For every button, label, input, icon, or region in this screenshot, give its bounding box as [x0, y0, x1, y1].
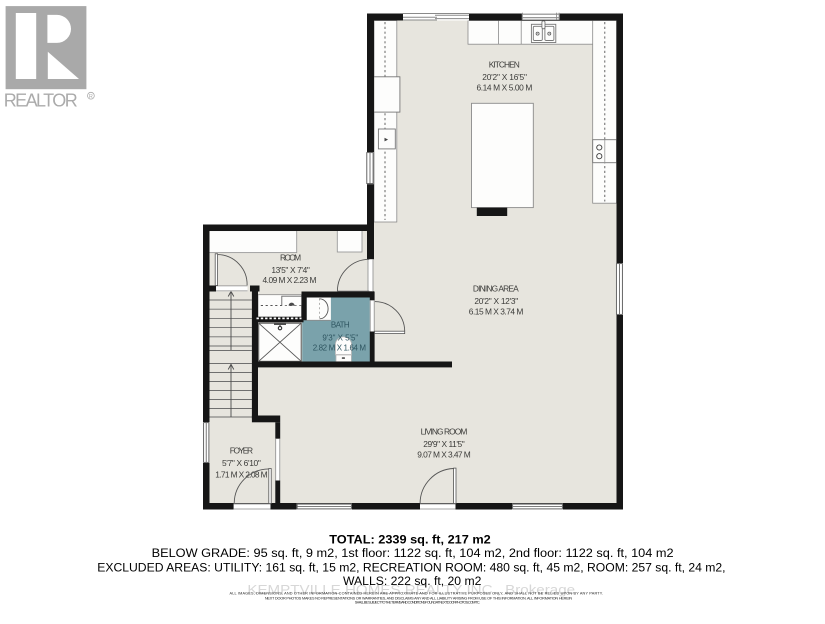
- svg-text:6.15 M X 3.74 M: 6.15 M X 3.74 M: [469, 307, 524, 317]
- svg-text:WALLS: 222 sq. ft, 20 m2: WALLS: 222 sq. ft, 20 m2: [343, 574, 481, 588]
- svg-text:R: R: [89, 94, 93, 100]
- svg-text:4.09 M X 2.23 M: 4.09 M X 2.23 M: [263, 275, 317, 285]
- svg-text:KITCHEN: KITCHEN: [489, 59, 520, 69]
- svg-text:FOYER: FOYER: [230, 445, 253, 455]
- svg-text:ALL IMAGES, DIMENSIONS, AND OT: ALL IMAGES, DIMENSIONS, AND OTHER INFORM…: [230, 592, 604, 596]
- svg-text:ROOM: ROOM: [280, 253, 301, 263]
- svg-text:9'3" X 5'5": 9'3" X 5'5": [322, 333, 358, 342]
- svg-text:6.14 M X 5.00 M: 6.14 M X 5.00 M: [477, 83, 533, 93]
- svg-text:29'9" X 11'5": 29'9" X 11'5": [423, 439, 465, 449]
- svg-text:SHALL BE SUBJECT TO THE TERMS: SHALL BE SUBJECT TO THE TERMS AND CONDIT…: [355, 601, 480, 605]
- svg-text:EXCLUDED AREAS: UTILITY: 161 s: EXCLUDED AREAS: UTILITY: 161 sq. ft, 15 …: [97, 561, 725, 575]
- svg-text:LIVING ROOM: LIVING ROOM: [421, 427, 468, 437]
- svg-text:20'2" X 16'5": 20'2" X 16'5": [482, 72, 527, 82]
- svg-text:TOTAL: 2339 sq. ft, 217 m2: TOTAL: 2339 sq. ft, 217 m2: [329, 532, 491, 546]
- svg-text:9.07 M X 3.47 M: 9.07 M X 3.47 M: [417, 449, 471, 459]
- svg-text:DINING AREA: DINING AREA: [473, 283, 519, 293]
- svg-text:20'2" X 12'3": 20'2" X 12'3": [474, 296, 518, 306]
- svg-text:BELOW GRADE: 95 sq. ft, 9 m2,: BELOW GRADE: 95 sq. ft, 9 m2, 1st floor:…: [152, 546, 674, 560]
- svg-text:BATH: BATH: [331, 321, 350, 330]
- svg-text:2.82 M X 1.64 M: 2.82 M X 1.64 M: [313, 344, 367, 353]
- svg-text:13'5" X 7'4": 13'5" X 7'4": [271, 265, 310, 275]
- svg-text:REALTOR: REALTOR: [4, 91, 79, 111]
- svg-text:5'7" X 6'10": 5'7" X 6'10": [222, 458, 261, 468]
- svg-text:1.71 M X 2.08 M: 1.71 M X 2.08 M: [215, 470, 267, 480]
